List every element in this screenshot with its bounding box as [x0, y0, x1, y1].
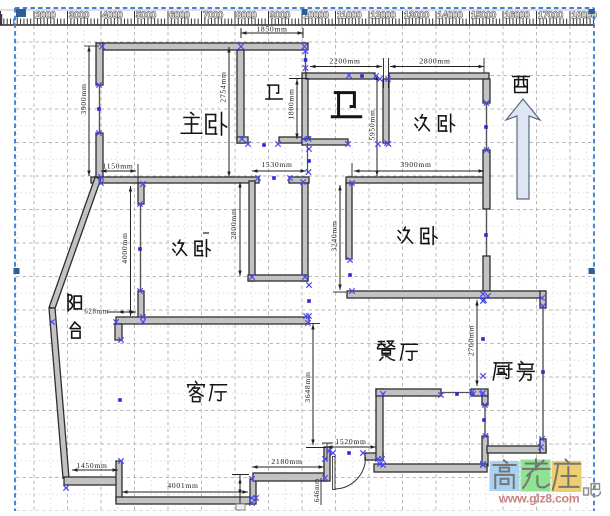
svg-text:3000: 3000: [69, 10, 89, 20]
svg-text:2700mm: 2700mm: [466, 325, 475, 356]
svg-text:3240mm: 3240mm: [329, 220, 338, 251]
svg-text:2800mm: 2800mm: [229, 208, 238, 239]
svg-text:2200mm: 2200mm: [329, 57, 360, 66]
svg-text:646mm: 646mm: [314, 478, 321, 502]
svg-text:4000mm: 4000mm: [120, 232, 129, 263]
svg-text:13000: 13000: [404, 10, 429, 20]
svg-text:3900mm: 3900mm: [400, 160, 431, 169]
svg-text:4000: 4000: [103, 10, 123, 20]
svg-text:14000: 14000: [438, 10, 463, 20]
svg-text:1530mm: 1530mm: [261, 160, 292, 169]
svg-text:12000: 12000: [371, 10, 396, 20]
svg-text:6000: 6000: [170, 10, 190, 20]
svg-text:7000: 7000: [203, 10, 223, 20]
svg-text:2180mm: 2180mm: [271, 457, 302, 466]
svg-text:1520mm: 1520mm: [335, 437, 366, 446]
svg-text:2000: 2000: [36, 10, 56, 20]
svg-text:5000: 5000: [136, 10, 156, 20]
svg-text:www.glz8.com: www.glz8.com: [498, 492, 580, 506]
svg-text:3648mm: 3648mm: [303, 371, 312, 402]
svg-text:16000: 16000: [505, 10, 530, 20]
svg-text:1800mm: 1800mm: [286, 88, 295, 119]
svg-text:17000: 17000: [538, 10, 563, 20]
svg-text:15000: 15000: [471, 10, 496, 20]
svg-text:1850mm: 1850mm: [256, 25, 287, 34]
svg-text:3900mm: 3900mm: [79, 83, 88, 114]
svg-text:11000: 11000: [337, 10, 361, 20]
svg-text:628mm: 628mm: [84, 309, 108, 316]
svg-text:2754mm: 2754mm: [218, 71, 227, 102]
svg-text:1450mm: 1450mm: [76, 461, 107, 470]
svg-text:4001mm: 4001mm: [167, 481, 198, 490]
svg-text:2800mm: 2800mm: [419, 57, 450, 66]
svg-text:1150mm: 1150mm: [103, 162, 134, 171]
svg-text:5950mm: 5950mm: [367, 109, 376, 140]
svg-text:8000: 8000: [237, 10, 257, 20]
svg-text:9000: 9000: [270, 10, 290, 20]
